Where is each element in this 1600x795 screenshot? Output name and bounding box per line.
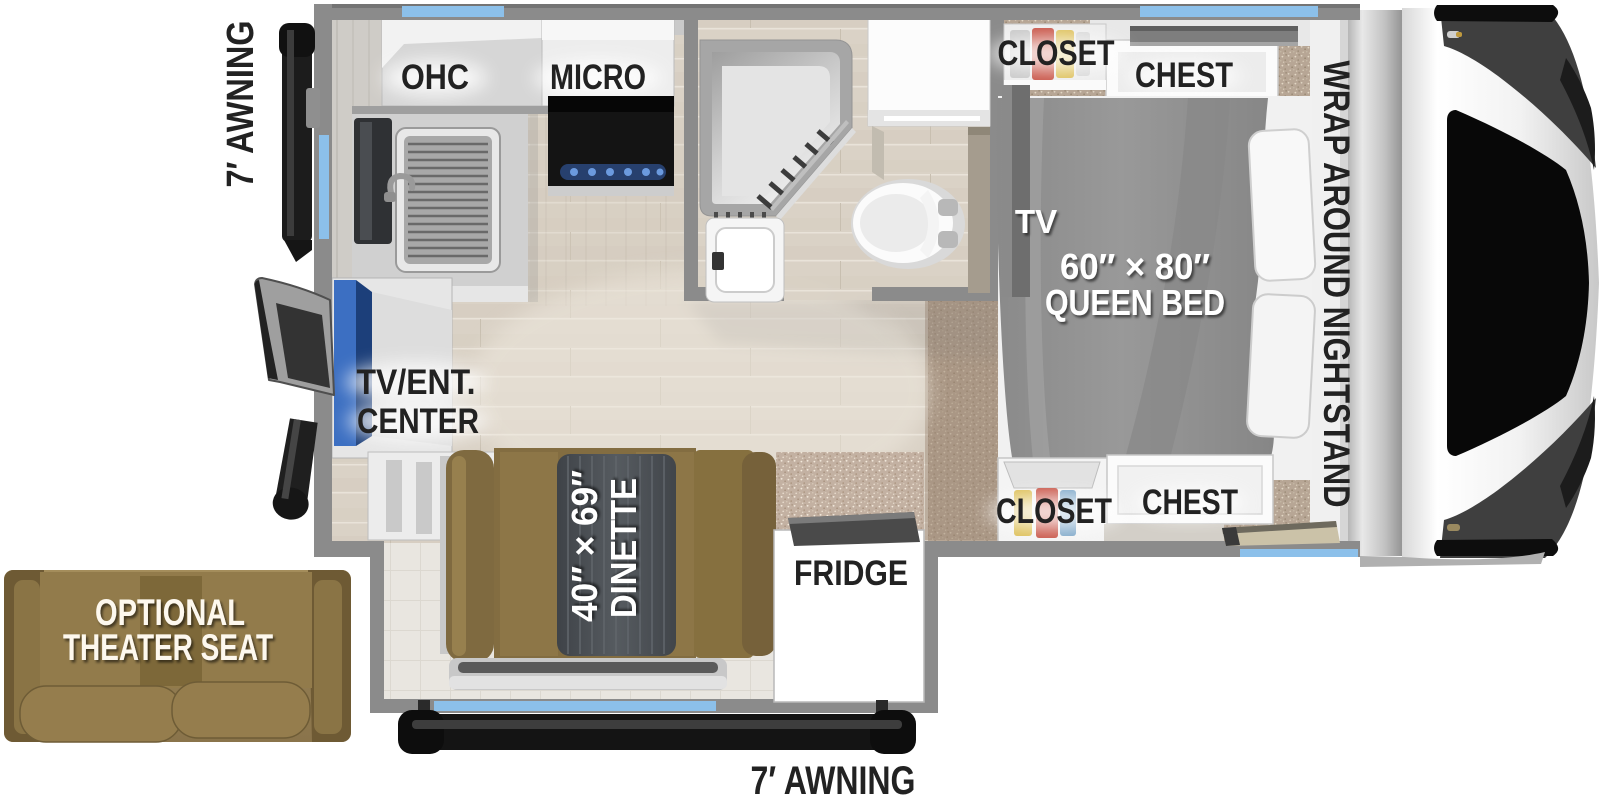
svg-text:TV: TV [1015,203,1057,240]
svg-text:QUEEN BED: QUEEN BED [1045,282,1225,323]
svg-text:THEATER SEAT: THEATER SEAT [63,627,273,668]
svg-text:CENTER: CENTER [357,402,479,441]
svg-text:CLOSET: CLOSET [998,34,1115,73]
svg-text:FRIDGE: FRIDGE [794,554,908,593]
svg-text:DINETTE: DINETTE [603,478,644,618]
svg-text:7′ AWNING: 7′ AWNING [220,21,262,188]
svg-text:MICRO: MICRO [550,58,646,97]
svg-text:CLOSET: CLOSET [996,492,1112,531]
svg-text:OHC: OHC [401,58,469,97]
svg-text:WRAP AROUND NIGHTSTAND: WRAP AROUND NIGHTSTAND [1316,61,1357,508]
svg-text:TV/ENT.: TV/ENT. [357,363,476,402]
svg-text:60″ × 80″: 60″ × 80″ [1060,246,1210,287]
svg-text:7′ AWNING: 7′ AWNING [751,759,916,795]
svg-text:CHEST: CHEST [1142,483,1238,522]
svg-text:CHEST: CHEST [1135,56,1233,95]
svg-text:40″ × 69″: 40″ × 69″ [564,470,605,622]
